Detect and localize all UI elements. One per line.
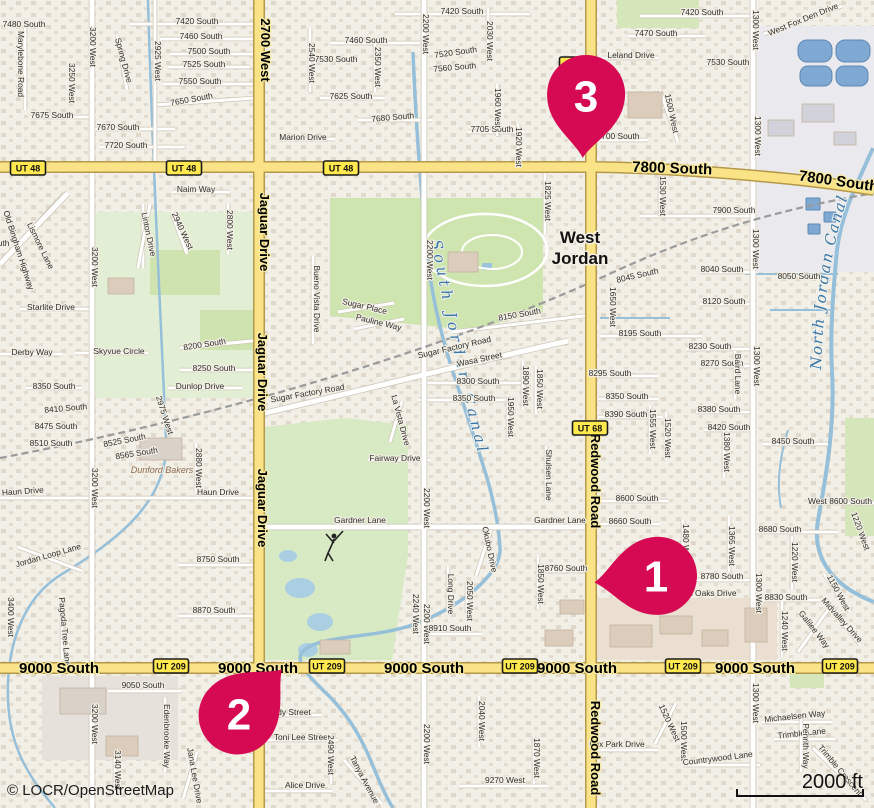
street-label: 1920 West	[514, 127, 524, 168]
street-label: 8510 South	[30, 438, 73, 448]
street-label: 3400 West	[6, 597, 16, 638]
street-label: 3375 South	[0, 238, 10, 248]
street-label: Dunlop Drive	[176, 381, 225, 391]
road-name-label: Jaguar Drive	[255, 333, 270, 412]
street-label: 1960 West	[493, 88, 503, 129]
street-label: 8910 South	[429, 623, 472, 633]
road-name-label: Jaguar Drive	[257, 193, 272, 272]
street-label: 8420 South	[708, 422, 751, 432]
route-shield-text: UT 209	[825, 662, 855, 672]
street-label: 2200 West	[421, 14, 431, 55]
street-label: 1825 West	[543, 181, 553, 222]
marker-number: 2	[227, 691, 251, 740]
street-label: Baird Lane	[733, 354, 743, 395]
svg-text:West: West	[560, 228, 601, 247]
street-label: 1500 West	[679, 721, 689, 762]
street-label: 8380 South	[698, 404, 741, 414]
street-label: 8830 South	[765, 592, 808, 602]
road-name-label: 9000 South	[715, 660, 795, 677]
marker-number: 3	[574, 73, 598, 122]
street-label: 8230 South	[689, 341, 732, 351]
street-label: Skyvue Circle	[93, 346, 145, 356]
street-label: 8300 South	[457, 376, 500, 386]
route-shield-text: UT 48	[16, 164, 41, 174]
route-shield-text: UT 48	[172, 164, 197, 174]
route-shield-text: UT 209	[156, 662, 186, 672]
route-shield-text: UT 209	[312, 662, 342, 672]
street-label: 1530 West	[658, 176, 668, 217]
street-label: 8390 South	[605, 409, 648, 419]
street-label: 2050 West	[465, 581, 475, 622]
street-label: 1520 West	[663, 418, 673, 459]
street-label: 2925 West	[153, 41, 163, 82]
route-shield-text: UT 48	[329, 164, 354, 174]
street-label: 3200 West	[90, 704, 100, 745]
map-canvas[interactable]: South Jordan Canal North Jordan Canal 74…	[0, 0, 874, 808]
road-name-label: 7800 South	[632, 159, 713, 179]
street-label: 8250 South	[193, 363, 236, 373]
street-label: 8450 South	[772, 436, 815, 446]
street-label: 2490 West	[326, 735, 336, 776]
street-label: 8660 South	[609, 516, 652, 526]
street-label: Long Drive	[446, 574, 456, 615]
street-label: 9270 West	[485, 775, 526, 785]
street-label: 8475 South	[35, 421, 78, 431]
street-label: 3250 West	[67, 63, 77, 104]
route-shield: UT 209	[310, 659, 345, 673]
street-label: Gardner Lane	[334, 515, 386, 525]
street-label: 1300 West	[751, 10, 761, 51]
poi-label: Dunford Bakers	[131, 465, 194, 475]
street-label: Marylebone Road	[16, 31, 26, 97]
route-shield: UT 48	[324, 161, 359, 175]
street-label: 2040 West	[477, 701, 487, 742]
route-shield: UT 48	[11, 161, 46, 175]
street-label: 1890 West	[521, 366, 531, 407]
street-label: 8680 South	[759, 524, 802, 534]
street-label: 8350 South	[453, 393, 496, 403]
street-label: 8350 South	[606, 391, 649, 401]
street-label: 8350 South	[33, 381, 76, 391]
street-label: Shulsen Lane	[544, 449, 554, 501]
street-label: 7420 South	[681, 7, 724, 17]
street-label: Haun Drive	[197, 487, 239, 497]
road-name-label: Redwood Road	[588, 434, 603, 529]
marker-number: 1	[644, 553, 668, 602]
route-shield: UT 209	[503, 659, 538, 673]
street-label: 2800 West	[225, 210, 235, 251]
street-label: Toni Lee Street	[274, 732, 331, 742]
street-label: 1555 West	[648, 409, 658, 450]
route-shield-text: UT 209	[505, 662, 535, 672]
street-label: 7525 South	[183, 59, 226, 69]
street-label: 1300 West	[751, 683, 761, 724]
road-name-label: Jaguar Drive	[255, 469, 270, 548]
road-name-label: 9000 South	[537, 660, 617, 677]
route-shield: UT 209	[823, 659, 858, 673]
road-name-label: 9000 South	[384, 660, 464, 677]
street-label: 7460 South	[345, 35, 388, 45]
route-shield: UT 68	[573, 421, 608, 435]
street-label: 8600 South	[616, 493, 659, 503]
poi-labels: Dunford Bakers	[131, 465, 194, 475]
street-label: 7550 South	[179, 76, 222, 86]
street-label: 8780 South	[701, 571, 744, 581]
street-label: Marion Drive	[279, 132, 327, 142]
route-shield-text: UT 68	[578, 424, 603, 434]
street-label: 2200 West	[422, 488, 432, 529]
street-label: Gardner Lane	[534, 515, 586, 525]
street-label: Starlite Drive	[27, 302, 75, 312]
street-label: 1300 West	[754, 573, 764, 614]
street-label: Alice Drive	[285, 780, 325, 790]
street-label: 1220 West	[790, 542, 800, 583]
street-label: 8760 South	[545, 563, 588, 573]
street-label: Leland Drive	[607, 50, 654, 60]
street-label: 7705 South	[471, 124, 514, 134]
street-label: 7900 South	[713, 205, 756, 215]
street-label: 7460 South	[180, 31, 223, 41]
street-label: 7720 South	[105, 140, 148, 150]
street-label: 3200 West	[90, 247, 100, 288]
street-label: 7420 South	[441, 6, 484, 16]
street-label: 2200 West	[422, 724, 432, 765]
street-label: 1850 West	[535, 369, 545, 410]
road-name-label: 2700 West	[258, 18, 273, 82]
street-label: 1365 West	[727, 526, 737, 567]
street-label: 7500 South	[188, 46, 231, 56]
street-label: 7625 South	[330, 91, 373, 101]
street-label: West 8600 South	[808, 496, 872, 506]
street-label: Naim Way	[177, 184, 216, 194]
street-label: 2350 West	[373, 47, 383, 88]
attribution-label: © LOCR/OpenStreetMap	[7, 782, 174, 799]
street-label: 2240 West	[411, 594, 421, 635]
street-label: 3200 West	[88, 27, 98, 68]
street-label: 2880 West	[194, 448, 204, 489]
street-label: 2200 West	[425, 240, 435, 281]
street-label: 7470 South	[635, 28, 678, 38]
street-label: 8870 South	[193, 605, 236, 615]
street-label: 1240 West	[780, 611, 790, 652]
svg-text:Jordan: Jordan	[552, 249, 609, 268]
street-label: Bueno Vista Drive	[312, 266, 322, 333]
route-shield-text: UT 209	[668, 662, 698, 672]
street-label: 1300 West	[753, 116, 763, 157]
street-label: 8295 South	[589, 368, 632, 378]
route-shield: UT 48	[167, 161, 202, 175]
street-label: Fairway Drive	[369, 453, 421, 463]
scale-label: 2000 ft	[802, 771, 864, 793]
street-label: 7670 South	[97, 122, 140, 132]
street-label: Penrith Way	[801, 723, 811, 769]
street-label: 1300 West	[751, 229, 761, 270]
street-label: 1850 West	[536, 564, 546, 605]
road-name-label: Redwood Road	[588, 701, 603, 796]
street-label: 7675 South	[31, 110, 74, 120]
street-label: 7480 South	[3, 19, 46, 29]
street-label: 7530 South	[315, 54, 358, 64]
street-label: Derby Way	[11, 347, 53, 357]
street-label: 8040 South	[701, 264, 744, 274]
street-label: 8050 South	[778, 271, 821, 281]
street-label: 7530 South	[707, 57, 750, 67]
route-shield: UT 209	[154, 659, 189, 673]
street-label: Edenbrooke Way	[162, 704, 172, 769]
street-label: 2540 West	[307, 43, 317, 84]
street-label: 1300 West	[752, 346, 762, 387]
street-label: 2030 West	[485, 21, 495, 62]
street-label: 8750 South	[197, 554, 240, 564]
street-label: 1870 West	[532, 738, 542, 779]
street-label: dy Street	[277, 707, 311, 717]
street-label: 7420 South	[176, 16, 219, 26]
street-label: 8195 South	[619, 328, 662, 338]
street-label: 3200 West	[90, 468, 100, 509]
street-label: 1380 West	[722, 432, 732, 473]
street-label: 9050 South	[122, 680, 165, 690]
street-label: 1650 West	[608, 287, 618, 328]
road-name-label: 9000 South	[19, 660, 99, 677]
street-label: 8120 South	[703, 296, 746, 306]
route-shield: UT 209	[666, 659, 701, 673]
map-viewport[interactable]: South Jordan Canal North Jordan Canal 74…	[0, 0, 874, 808]
street-label: 1950 West	[506, 397, 516, 438]
